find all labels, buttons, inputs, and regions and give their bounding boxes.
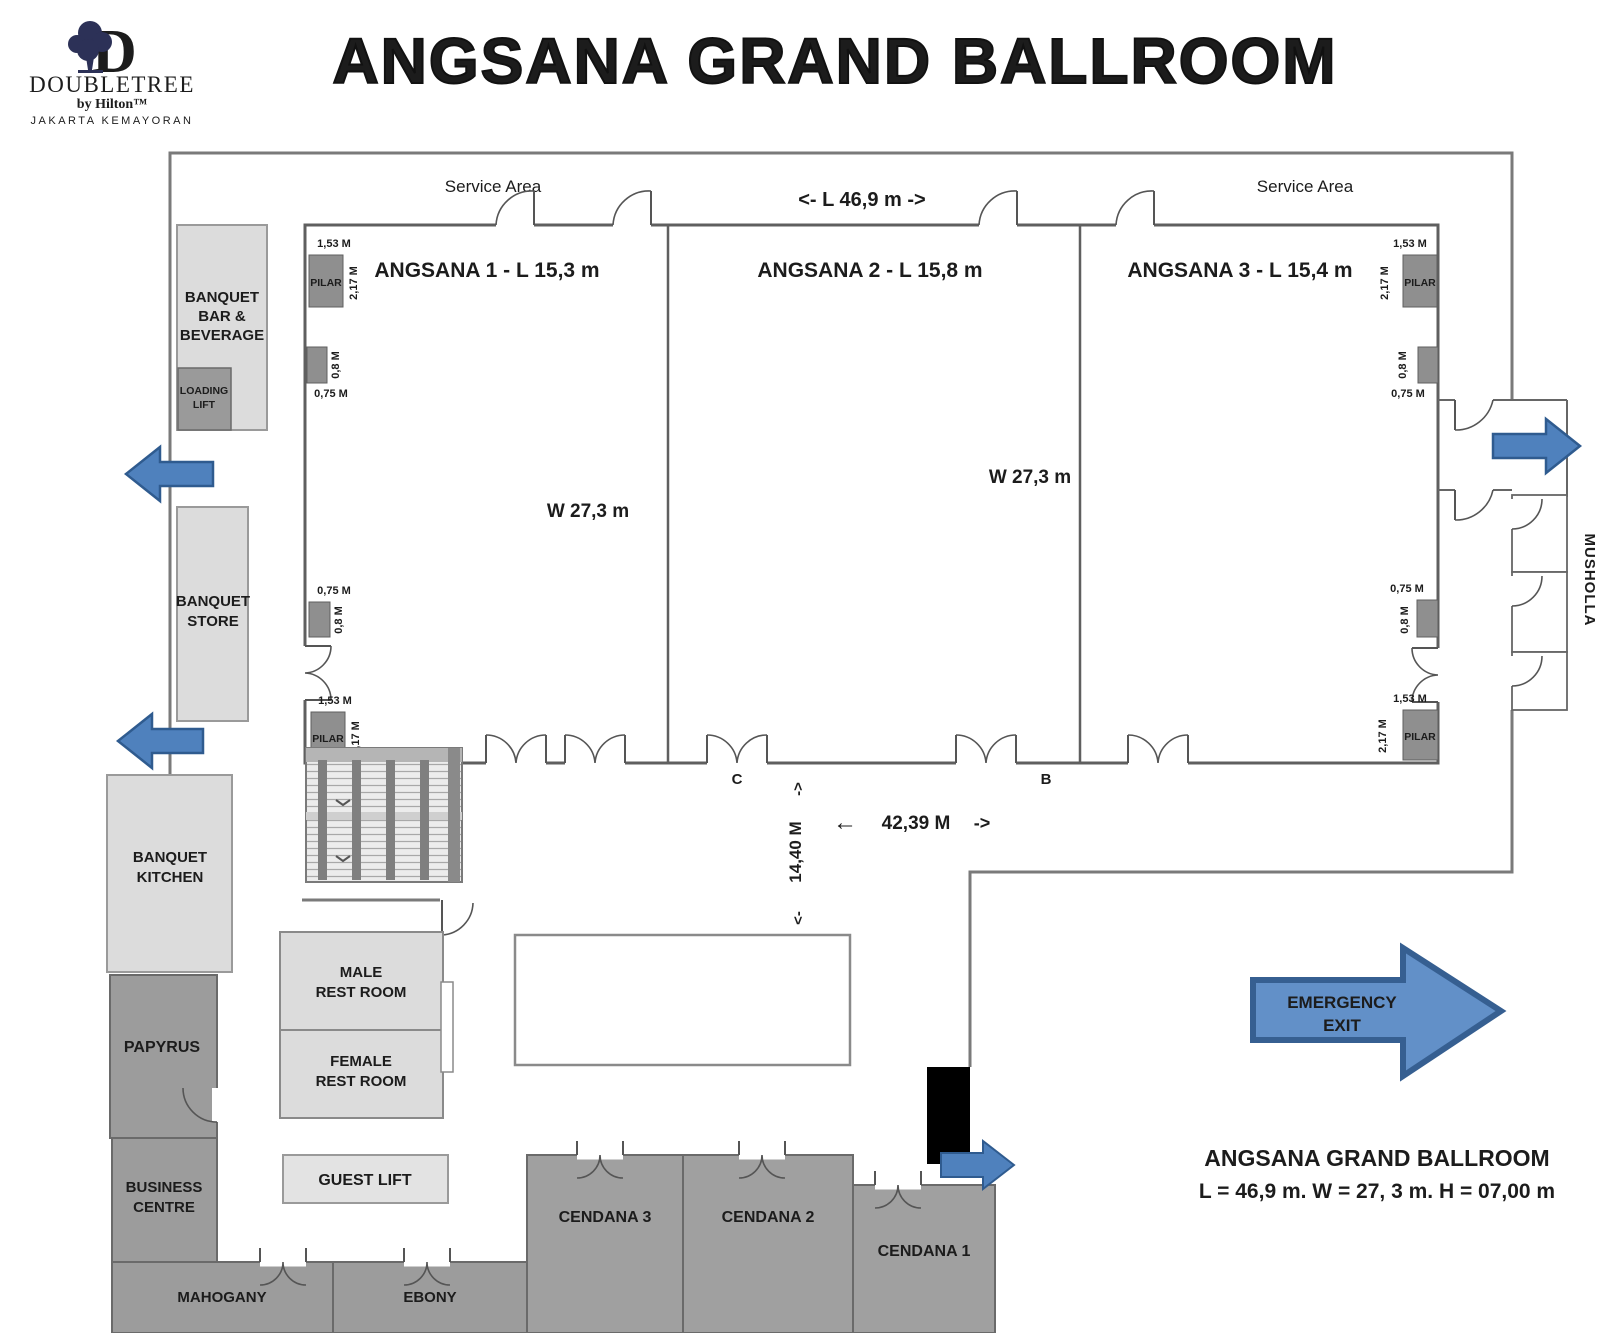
service-shaft	[927, 1067, 970, 1164]
room-label: BEVERAGE	[180, 327, 264, 344]
room-label: CENDANA 2	[722, 1209, 815, 1226]
pillar-dim: 0,8 M	[330, 351, 342, 379]
loading-lift: LOADING LIFT	[178, 368, 231, 430]
pillar-dim: 1,53 M	[317, 238, 351, 250]
emergency-exit-arrow: EMERGENCY EXIT	[1253, 948, 1501, 1076]
top-length-dimension: <- L 46,9 m ->	[798, 189, 925, 211]
business-centre: BUSINESS CENTRE	[112, 1138, 217, 1262]
emergency-exit-arrow-icon	[1253, 948, 1501, 1076]
ebony-room: EBONY	[333, 1248, 527, 1333]
room-label: BANQUET	[185, 289, 259, 306]
stairs-block	[306, 748, 462, 882]
pillar-dim: 2,17 M	[1377, 719, 1389, 753]
caption-title: ANGSANA GRAND BALLROOM	[1204, 1145, 1549, 1171]
hall3-label: ANGSANA 3 - L 15,4 m	[1127, 259, 1352, 282]
width1-label: W 27,3 m	[547, 501, 629, 522]
pillar-dim: 0,75 M	[1391, 388, 1425, 400]
guest-lift: GUEST LIFT	[283, 1155, 448, 1203]
room-label: LOADING	[180, 385, 228, 397]
pillar-dim: 2,17 M	[348, 266, 360, 300]
width2-label: W 27,3 m	[989, 467, 1071, 488]
emergency-exit-label: EMERGENCY	[1287, 993, 1397, 1012]
room-label: KITCHEN	[137, 869, 204, 886]
door-b-label: B	[1041, 771, 1052, 788]
pillar-dim: 0,75 M	[314, 388, 348, 400]
room-label: CENTRE	[133, 1199, 195, 1216]
hall2-label: ANGSANA 2 - L 15,8 m	[757, 259, 982, 282]
service-area-left-label: Service Area	[445, 177, 542, 196]
room-label: LIFT	[193, 399, 216, 411]
logo-byline: by Hilton™	[77, 97, 147, 112]
pillar-label: PILAR	[1404, 731, 1436, 743]
restroom-door-recess	[441, 982, 453, 1072]
pillar-label: PILAR	[312, 733, 344, 745]
room-label: BANQUET	[133, 849, 207, 866]
room-label: MALE	[340, 964, 383, 981]
cendana2-room: CENDANA 2	[683, 1141, 853, 1333]
logo-brand: DOUBLETREE	[29, 72, 195, 97]
ballroom-outline	[305, 225, 1438, 763]
male-restroom: MALE REST ROOM	[280, 932, 443, 1030]
pillar-dim: 2,17 M	[1379, 266, 1391, 300]
hall1-label: ANGSANA 1 - L 15,3 m	[374, 259, 599, 282]
cendana1-room: CENDANA 1	[853, 1171, 995, 1333]
female-restroom: FEMALE REST ROOM	[280, 1030, 443, 1118]
room-label: BUSINESS	[126, 1179, 203, 1196]
room-label: CENDANA 1	[878, 1243, 971, 1260]
floor-plan-canvas: D DOUBLETREE by Hilton™ JAKARTA KEMAYORA…	[0, 0, 1600, 1333]
banquet-kitchen: BANQUET KITCHEN	[107, 775, 232, 972]
restroom-door-arc	[442, 903, 473, 935]
dim-42-label: 42,39 M	[882, 813, 951, 834]
dim-42-arrow-right: ->	[974, 813, 991, 833]
room-label: REST ROOM	[316, 984, 407, 1001]
room-label: EBONY	[403, 1289, 456, 1306]
room-label: BAR &	[198, 308, 246, 325]
pillar-dim: 0,8 M	[1399, 606, 1411, 634]
pillar-label: PILAR	[310, 277, 342, 289]
pillar-label: PILAR	[1404, 277, 1436, 289]
page-title: ANGSANA GRAND BALLROOM	[332, 25, 1337, 97]
room-label: REST ROOM	[316, 1073, 407, 1090]
pillar-dim: 0,8 M	[333, 606, 345, 634]
doubletree-logo: D DOUBLETREE by Hilton™ JAKARTA KEMAYORA…	[29, 18, 195, 127]
pillar-dim: 1,53 M	[318, 695, 352, 707]
door-c-label: C	[732, 771, 743, 788]
room-label: PAPYRUS	[124, 1039, 200, 1056]
pillar-dim: 0,8 M	[1397, 351, 1409, 379]
exit-arrow-left-bottom-icon	[118, 714, 203, 768]
room-label: GUEST LIFT	[318, 1172, 412, 1189]
room-label: FEMALE	[330, 1053, 392, 1070]
emergency-exit-label: EXIT	[1323, 1016, 1361, 1035]
cendana3-room: CENDANA 3	[527, 1141, 683, 1333]
floor-plan-page: D DOUBLETREE by Hilton™ JAKARTA KEMAYORA…	[0, 0, 1600, 1333]
dim-42-arrow-left: ←	[833, 809, 857, 836]
logo-location: JAKARTA KEMAYORAN	[31, 115, 194, 127]
papyrus-room: PAPYRUS	[110, 975, 221, 1138]
room-label: MAHOGANY	[177, 1289, 266, 1306]
caption-dimensions: L = 46,9 m. W = 27, 3 m. H = 07,00 m	[1199, 1180, 1555, 1203]
dim-14-label: 14,40 M	[786, 821, 805, 882]
dim-14-arrow-bottom: <-	[790, 911, 807, 925]
pillar-dim: 1,53 M	[1393, 238, 1427, 250]
room-label: STORE	[187, 613, 238, 630]
dim-14-arrow-top: ->	[790, 782, 807, 796]
musholla-label: MUSHOLLA	[1581, 534, 1598, 627]
room-label: BANQUET	[176, 593, 250, 610]
service-area-right-label: Service Area	[1257, 177, 1354, 196]
pillar-dim: 1,53 M	[1393, 693, 1427, 705]
pillar-dim: 0,75 M	[317, 585, 351, 597]
room-label: CENDANA 3	[559, 1209, 652, 1226]
pillar-dim: 0,75 M	[1390, 583, 1424, 595]
banquet-store: BANQUET STORE	[176, 507, 250, 721]
foyer-table	[515, 935, 850, 1065]
